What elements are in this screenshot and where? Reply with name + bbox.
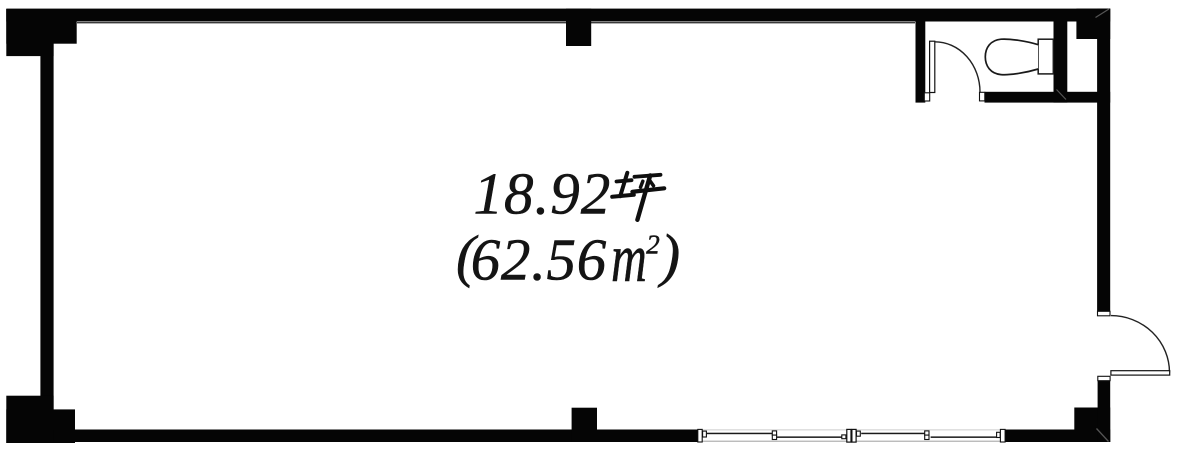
svg-text:): ) [658, 222, 681, 288]
svg-text:2: 2 [646, 229, 660, 259]
svg-text:18.92: 18.92 [474, 161, 612, 227]
svg-text:62.56: 62.56 [471, 227, 607, 293]
svg-text:m: m [611, 220, 647, 297]
